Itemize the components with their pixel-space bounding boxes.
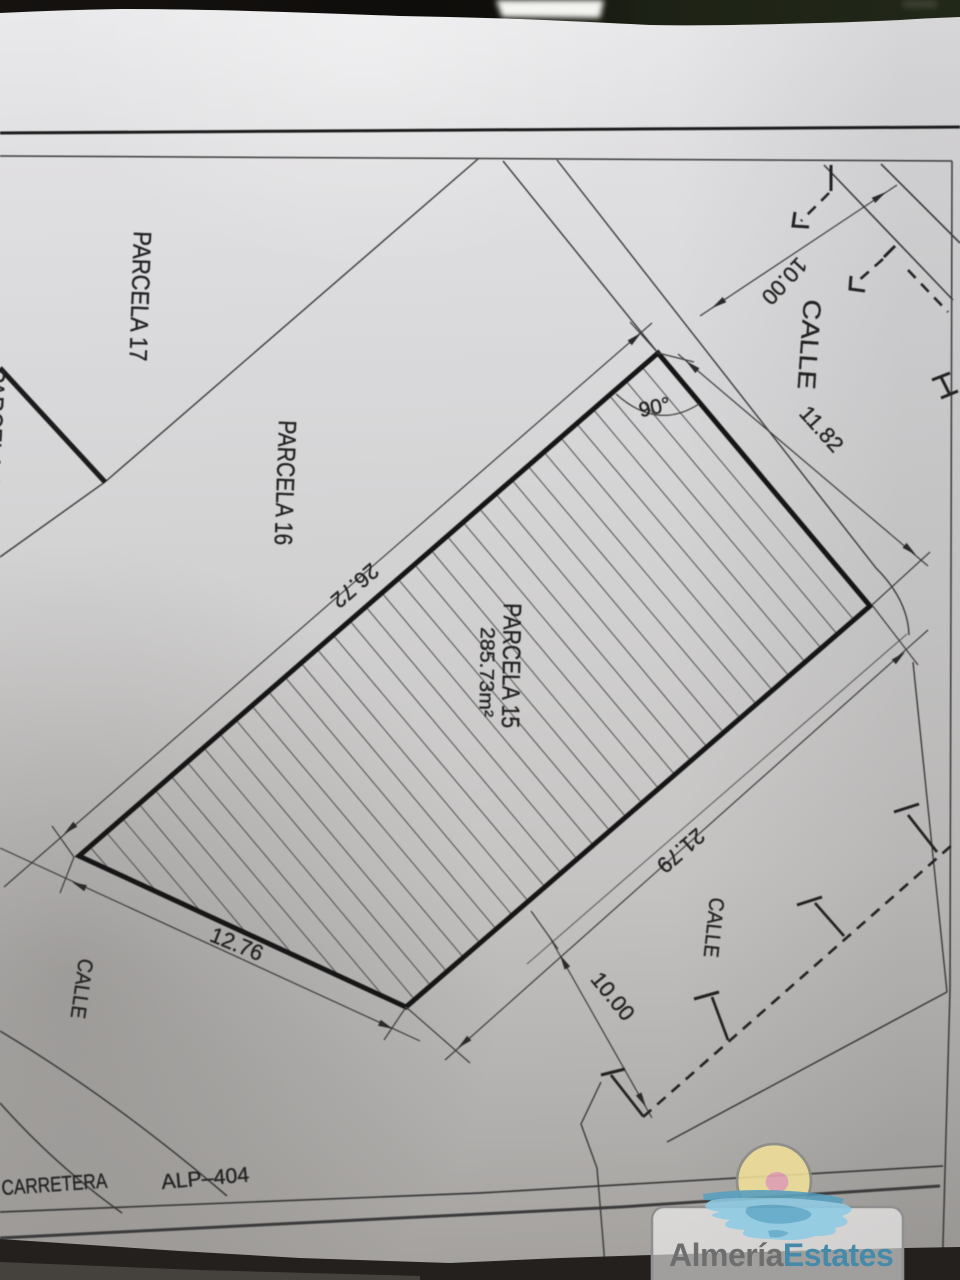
svg-text:CALLE: CALLE bbox=[699, 896, 728, 958]
svg-text:90°: 90° bbox=[637, 393, 673, 422]
svg-text:285.73m²: 285.73m² bbox=[474, 627, 498, 718]
svg-text:CALLE: CALLE bbox=[66, 957, 97, 1020]
svg-text:26.72: 26.72 bbox=[326, 558, 384, 613]
svg-text:ALP–404: ALP–404 bbox=[160, 1163, 250, 1194]
svg-text:AlmeríaEstates: AlmeríaEstates bbox=[669, 1237, 893, 1273]
svg-text:10.00: 10.00 bbox=[586, 967, 640, 1026]
svg-text:PARCELA 18: PARCELA 18 bbox=[0, 368, 10, 499]
svg-text:PARCELA 16: PARCELA 16 bbox=[269, 420, 301, 546]
svg-text:11.82: 11.82 bbox=[794, 401, 848, 457]
svg-text:CARRETERA: CARRETERA bbox=[1, 1170, 108, 1200]
svg-text:21.79: 21.79 bbox=[652, 823, 710, 878]
svg-text:PARCELA 15: PARCELA 15 bbox=[496, 603, 526, 728]
svg-text:PARCELA 17: PARCELA 17 bbox=[123, 231, 156, 362]
svg-text:CALLE: CALLE bbox=[792, 299, 826, 391]
